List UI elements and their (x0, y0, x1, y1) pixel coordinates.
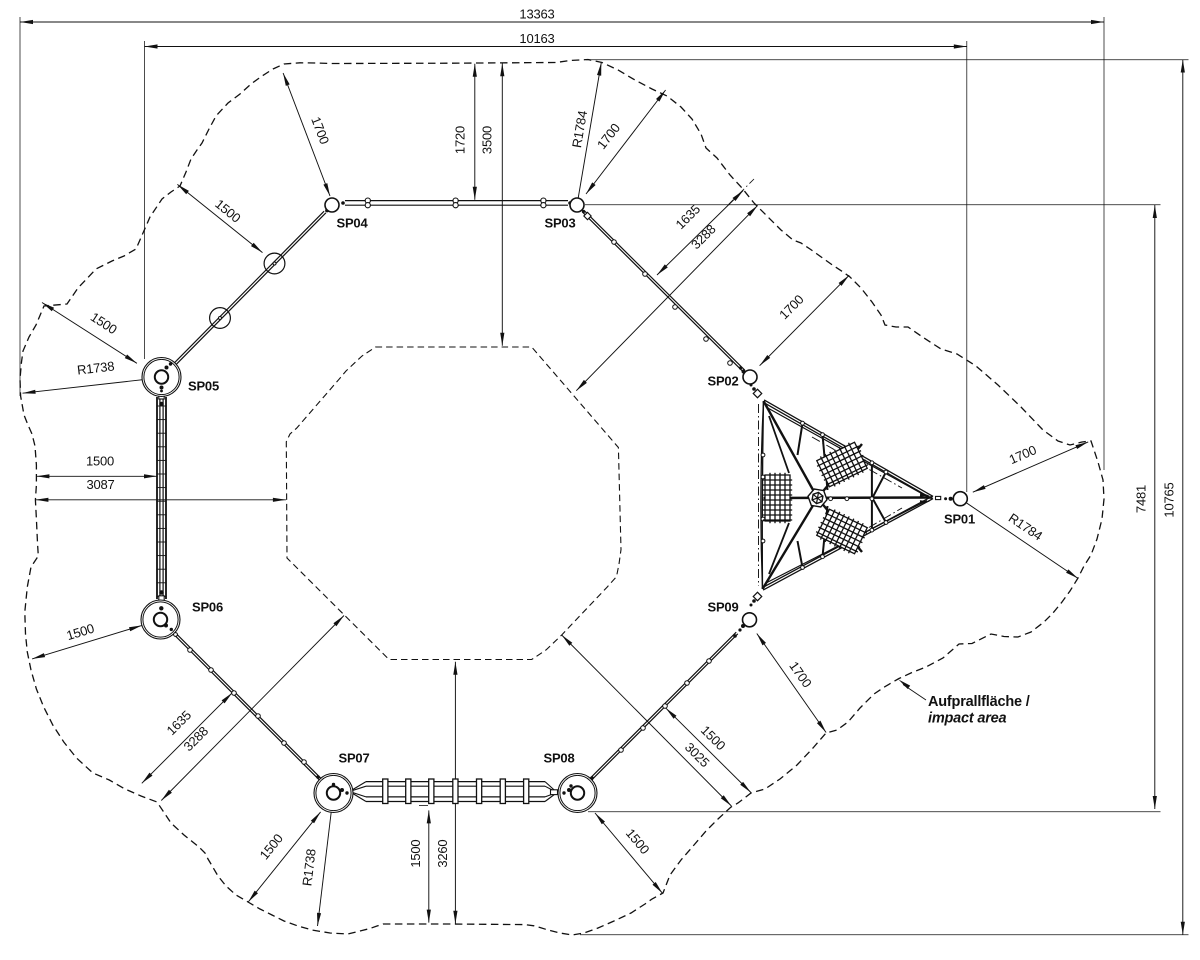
svg-text:Aufprallfläche /: Aufprallfläche / (928, 694, 1030, 710)
svg-text:SP08: SP08 (543, 751, 574, 766)
svg-text:3500: 3500 (480, 126, 495, 154)
svg-text:10163: 10163 (519, 31, 554, 46)
svg-text:SP05: SP05 (188, 379, 219, 394)
svg-text:SP02: SP02 (707, 374, 738, 389)
svg-text:SP06: SP06 (192, 600, 223, 615)
svg-text:SP01: SP01 (944, 512, 975, 527)
svg-text:SP03: SP03 (544, 216, 575, 231)
svg-text:3260: 3260 (435, 840, 450, 868)
svg-text:3087: 3087 (86, 477, 114, 492)
svg-text:1500: 1500 (408, 840, 423, 868)
svg-text:SP09: SP09 (707, 600, 738, 615)
svg-text:SP07: SP07 (338, 751, 369, 766)
svg-text:10765: 10765 (1162, 482, 1177, 517)
svg-text:13363: 13363 (519, 7, 554, 22)
svg-text:SP04: SP04 (336, 216, 368, 231)
svg-text:impact area: impact area (928, 711, 1007, 727)
svg-text:1500: 1500 (86, 454, 114, 469)
svg-text:1720: 1720 (453, 126, 468, 154)
svg-text:7481: 7481 (1134, 485, 1149, 513)
